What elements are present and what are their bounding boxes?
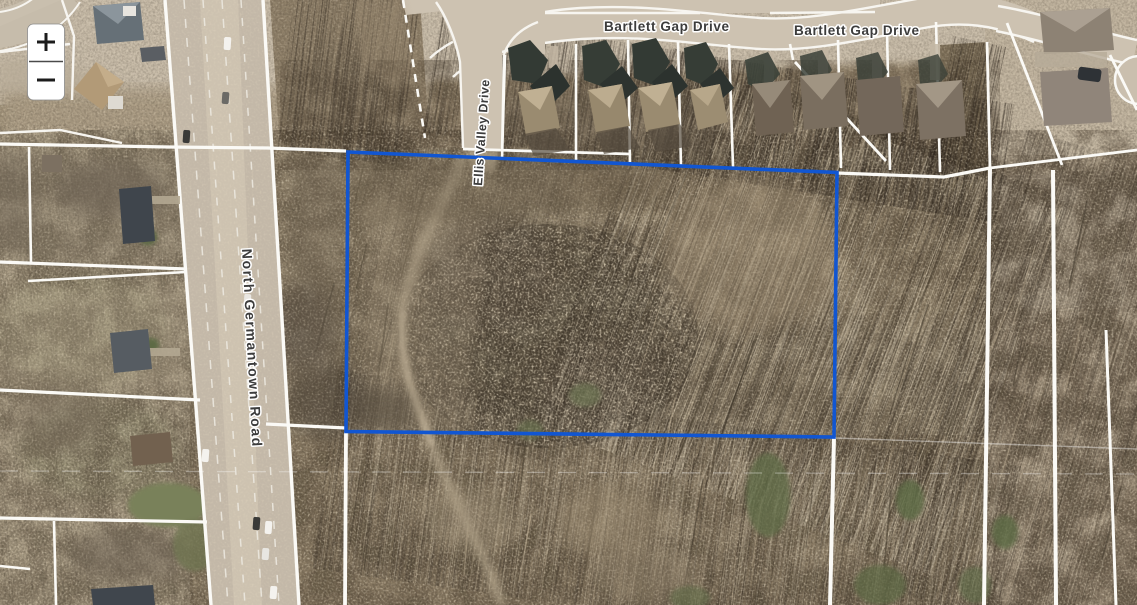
svg-text:Bartlett Gap Drive: Bartlett Gap Drive [794,23,920,38]
svg-text:Bartlett Gap Drive: Bartlett Gap Drive [604,19,730,34]
